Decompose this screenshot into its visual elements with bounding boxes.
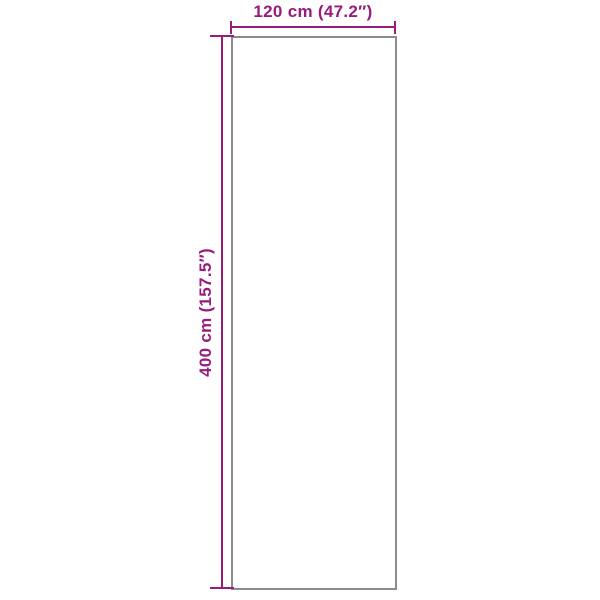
height-label-container: 400 cm (157.5″)	[192, 35, 219, 589]
width-dimension-line	[230, 26, 396, 28]
product-outline	[231, 36, 397, 590]
dimension-diagram: 120 cm (47.2″) 400 cm (157.5″)	[0, 0, 600, 600]
height-dimension-line	[221, 35, 223, 589]
width-label: 120 cm (47.2″)	[230, 0, 396, 24]
height-label: 400 cm (157.5″)	[197, 248, 214, 377]
